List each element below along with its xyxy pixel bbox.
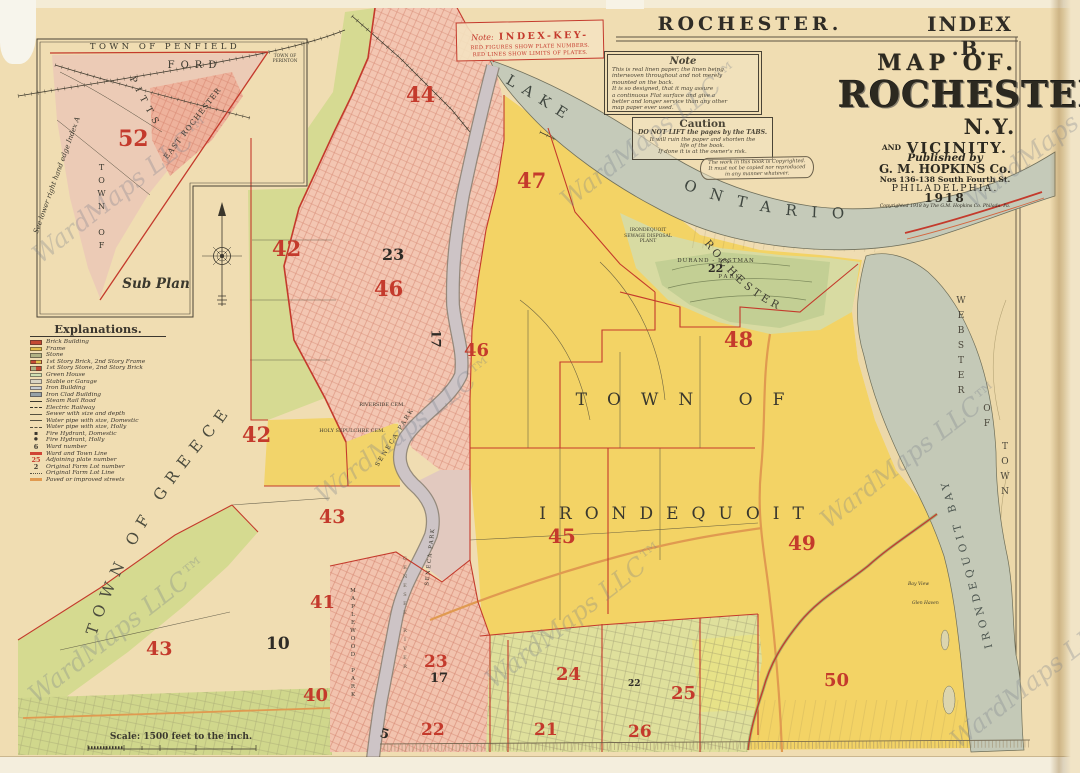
- plate-number-42: 42: [272, 238, 301, 259]
- plate-number-44: 44: [406, 84, 435, 105]
- legend-label: Green House: [46, 372, 85, 378]
- inset-penfield-label: TOWN OF PENFIELD: [60, 42, 270, 52]
- swatch-paved-street: [30, 478, 42, 481]
- swatch-ward-number: 6: [30, 443, 42, 451]
- plate-number-46: 46: [374, 278, 403, 299]
- legend-label: Water pipe with size, Domestic: [46, 418, 139, 424]
- legend-label: Frame: [46, 346, 66, 352]
- paper-repair-patch: [0, 0, 36, 64]
- caution-line: If done it is at the owner's risk.: [636, 149, 769, 155]
- legend-label: 1st Story Stone, 2nd Story Brick: [46, 365, 143, 371]
- plate-number-26: 26: [628, 724, 652, 741]
- swatch-ward-town-line: [30, 452, 42, 455]
- plate-number-48: 48: [724, 329, 753, 350]
- scale-text: Scale: 1500 feet to the inch.: [88, 732, 274, 742]
- plate-number-49: 49: [788, 533, 816, 553]
- paper-top-margin: [0, 0, 1080, 8]
- paper-bottom-margin: [0, 757, 1080, 773]
- inset-ford-label: FORD: [150, 60, 240, 71]
- legend-label: Steam Rail Road: [46, 398, 96, 404]
- legend-label: Iron Clad Building: [46, 392, 101, 398]
- paper-edge-patch: [606, 0, 644, 9]
- title-city: ROCHESTER: [838, 74, 1053, 116]
- legend-label: Ward and Town Line: [46, 451, 107, 457]
- plate-number-23: 23: [424, 654, 448, 671]
- swatch-farm-lot-number: 2: [30, 463, 42, 471]
- plate-number-43: 43: [319, 508, 345, 527]
- title-copyright: Copyrighted 1918 by The G.M. Hopkins Co.…: [840, 204, 1050, 209]
- title-year: 1918: [845, 191, 1045, 205]
- ward-number-22: 22: [708, 263, 723, 274]
- copyright-scroll: The work in this book is Copyrighted. It…: [700, 156, 814, 180]
- legend-label: Fire Hydrant, Holly: [46, 437, 104, 443]
- swatch-farm-lot-line: [30, 473, 42, 474]
- genesee-river-label: GENESEE RIVER: [402, 556, 408, 673]
- plate-number-41: 41: [310, 594, 335, 612]
- ward-number-10: 10: [266, 636, 290, 653]
- legend-label: Original Farm Lot number: [46, 464, 125, 470]
- swatch-frame: [30, 347, 42, 352]
- ward-number-17: 17: [429, 329, 442, 347]
- town-of-label: TOWN OF: [560, 390, 820, 410]
- swatch-brick-frame: [30, 360, 42, 365]
- legend-title: Explanations.: [30, 322, 166, 337]
- inset-sub-plan-label: Sub Plan: [106, 276, 206, 292]
- swatch-brick: [30, 340, 42, 345]
- legend-label: Fire Hydrant, Domestic: [46, 431, 117, 437]
- legend-label: Electric Railway: [46, 405, 95, 411]
- sewage-line: PLANT: [612, 239, 684, 245]
- legend-label: 1st Story Brick, 2nd Story Frame: [46, 359, 145, 365]
- plate-number-52: 52: [118, 128, 149, 150]
- glen-haven-label: Glen Haven: [912, 601, 964, 606]
- legend-label: Sewer with size and depth: [46, 411, 125, 417]
- bay-view-label: Bay View: [908, 582, 960, 587]
- swatch-iron-clad: [30, 392, 42, 397]
- title-and: AND: [882, 143, 901, 152]
- index-key-note-word: Note:: [471, 33, 494, 42]
- swatch-stone-brick: [30, 366, 42, 371]
- swatch-hydrant-domestic: ▪: [30, 432, 42, 436]
- legend-label: Original Farm Lot Line: [46, 470, 115, 476]
- map-sheet: LAKE ONTARIO TOWN OF GREECE IRONDEQUOIT …: [0, 0, 1080, 773]
- plate-number-22: 22: [421, 722, 445, 739]
- swatch-electric-line: [30, 407, 42, 408]
- legend-label: Stone: [46, 352, 63, 358]
- sewage-plant-label: IRONDEQUOIT SEWAGE DISPOSAL PLANT: [612, 228, 684, 245]
- compass-rose: [202, 202, 242, 306]
- plate-number-43b: 43: [146, 640, 172, 659]
- plate-number-40: 40: [303, 687, 328, 705]
- plate-number-45: 45: [548, 526, 576, 546]
- plate-number-24: 24: [556, 666, 581, 684]
- ward-number-17b: 17: [430, 672, 448, 685]
- swatch-iron: [30, 386, 42, 391]
- plate-number-21: 21: [534, 722, 558, 739]
- swatch-stable: [30, 379, 42, 384]
- index-key-note: Note: INDEX-KEY- RED FIGURES SHOW PLATE …: [456, 19, 605, 61]
- legend-label: Paved or improved streets: [46, 477, 125, 483]
- swatch-water-domestic-line: [30, 420, 42, 421]
- legend-label: Stable or Garage: [46, 379, 97, 385]
- inset-perinton-label: TOWN OF PERINTON: [262, 54, 308, 64]
- plate-number-47: 47: [517, 170, 546, 191]
- swatch-greenhouse: [30, 373, 42, 378]
- irondequoit-label: IRONDEQUOIT: [498, 504, 858, 524]
- webster-label: WEBSTER: [956, 296, 966, 401]
- maplewood-park-label: MAPLEWOOD PARK: [350, 588, 356, 700]
- ward-number-22b: 22: [628, 680, 641, 689]
- legend-label: Adjoining plate number: [46, 457, 117, 463]
- plate-number-42b: 42: [242, 424, 271, 445]
- sheet-title: ROCHESTER.: [655, 13, 845, 35]
- title-map-of: MAP OF.: [855, 50, 1040, 76]
- legend: Explanations. Brick Building Frame Stone…: [30, 322, 166, 483]
- swatch-sewer-line: [30, 414, 42, 415]
- swatch-water-holly-line: [30, 427, 42, 428]
- legend-label: Brick Building: [46, 339, 89, 345]
- inset-perinton-line: PERINTON: [262, 59, 308, 64]
- plate-number-25: 25: [671, 685, 696, 703]
- swatch-hydrant-holly: ●: [30, 438, 42, 442]
- ward-number-23: 23: [382, 247, 404, 263]
- webster-town-label: TOWN: [1000, 442, 1010, 502]
- plate-number-50: 50: [824, 672, 849, 690]
- legend-label: Iron Building: [46, 385, 85, 391]
- swatch-stone: [30, 353, 42, 358]
- index-key-title: INDEX-KEY-: [499, 30, 589, 43]
- swatch-steam-rr-line: [30, 401, 42, 402]
- legend-label: Water pipe with size, Holly: [46, 424, 126, 430]
- legend-label: Ward number: [46, 444, 87, 450]
